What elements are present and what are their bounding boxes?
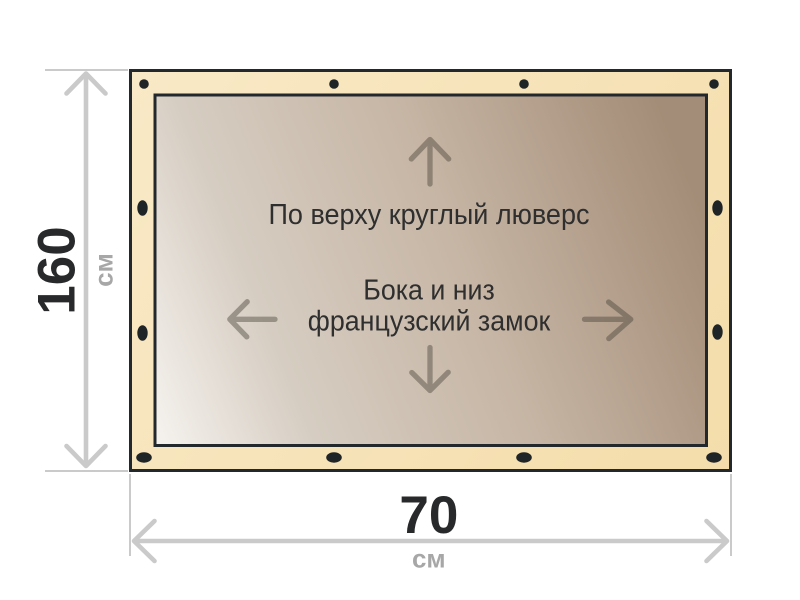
svg-text:Бока и низ: Бока и низ <box>363 274 495 306</box>
svg-text:160: 160 <box>28 226 87 314</box>
svg-text:см: см <box>89 253 119 287</box>
svg-text:см: см <box>412 544 446 574</box>
svg-text:70: 70 <box>399 486 458 545</box>
svg-text:французский замок: французский замок <box>308 306 551 338</box>
svg-text:По верху круглый люверс: По верху круглый люверс <box>269 199 590 231</box>
